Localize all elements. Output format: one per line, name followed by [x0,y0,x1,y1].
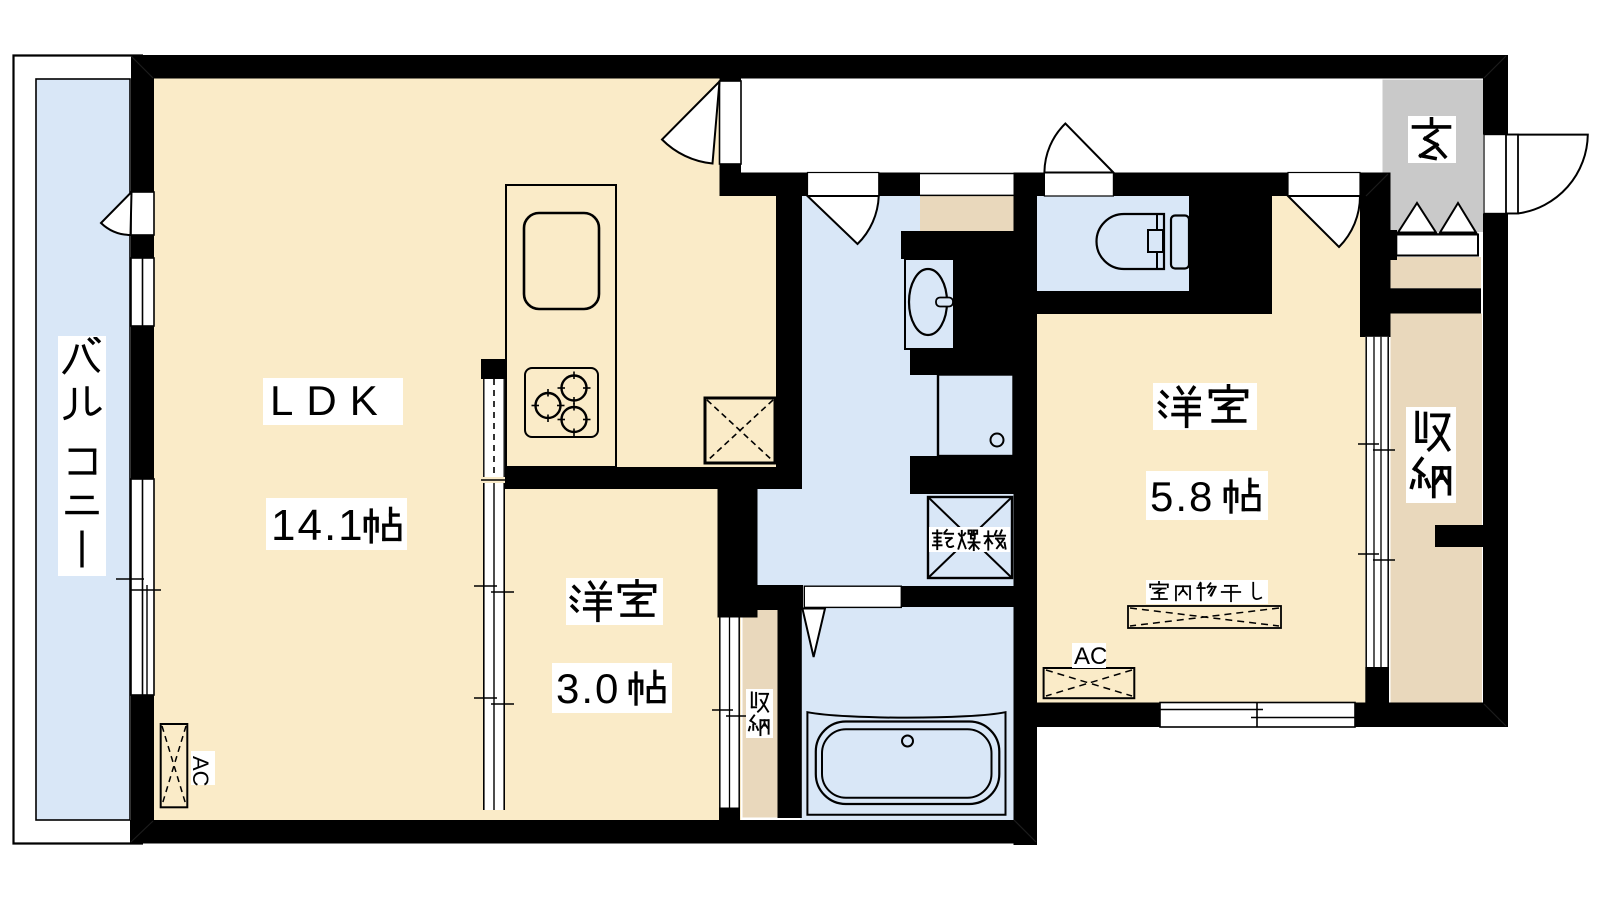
svg-text:AC: AC [188,756,213,787]
svg-text:5.8: 5.8 [1150,473,1214,520]
svg-text:3.0: 3.0 [556,665,620,712]
svg-text:LDK: LDK [270,377,391,424]
svg-text:14.1: 14.1 [271,501,365,550]
svg-text:AC: AC [1074,643,1107,670]
